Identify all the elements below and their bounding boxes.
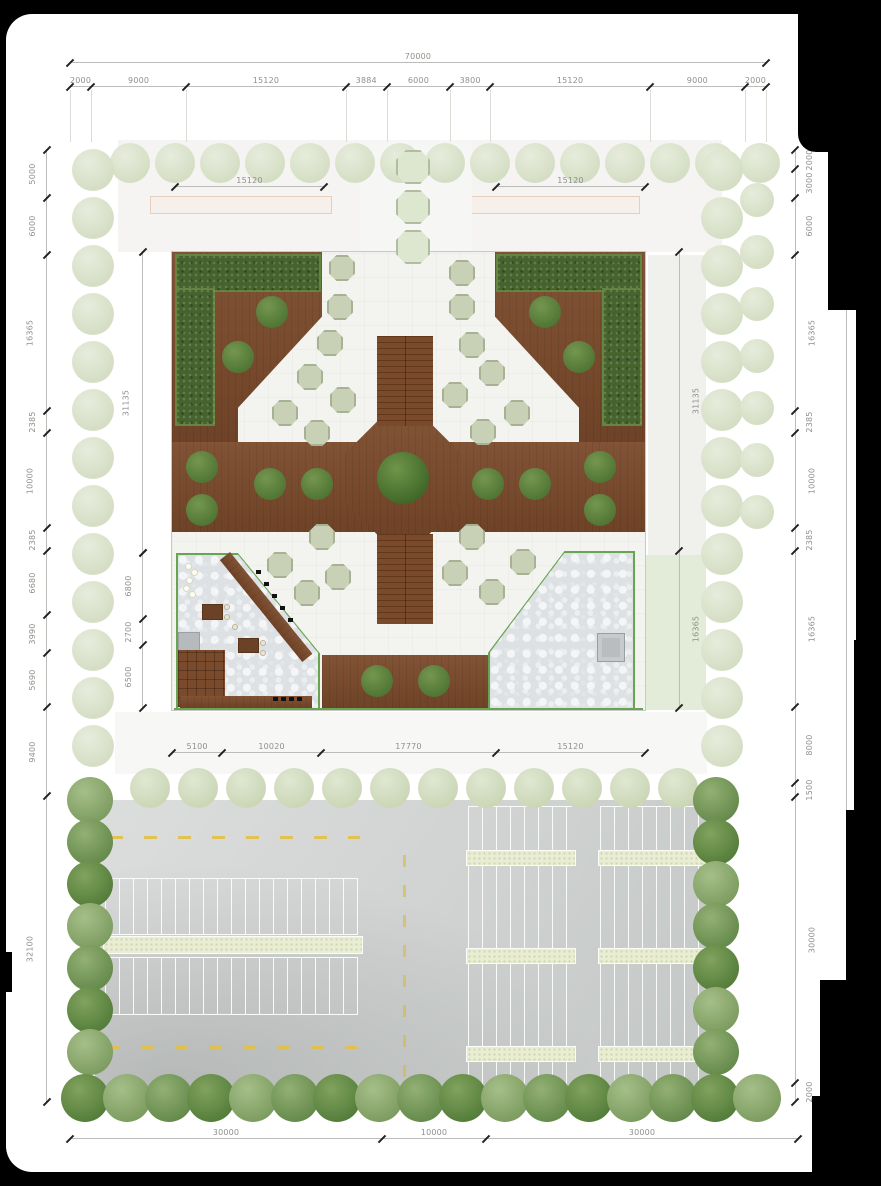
dim-label: 16365 [692, 616, 701, 642]
picnic-table [238, 638, 259, 653]
dim-extension-line [745, 90, 746, 142]
mask-step [828, 152, 881, 310]
tree-icon [67, 777, 113, 823]
tree-icon [529, 296, 561, 328]
planter [329, 255, 355, 281]
tree-icon [145, 1074, 193, 1122]
tree-icon [740, 287, 774, 321]
dim-label: 2385 [28, 529, 37, 550]
corridor-tree-icon [396, 150, 430, 184]
tree-icon [701, 245, 743, 287]
tree-icon [361, 665, 393, 697]
tree-icon [740, 183, 774, 217]
planter [449, 294, 475, 320]
lane-marking [110, 836, 360, 839]
dim-chain-top-total: 70000 [70, 52, 766, 66]
mask-step [820, 980, 881, 1096]
dim-label: 32100 [25, 936, 34, 962]
dim-label: 70000 [405, 52, 431, 61]
dim-label: 2700 [124, 621, 133, 642]
dim-segment: 15120 [496, 742, 645, 756]
dim-segment: 30000 [70, 1128, 382, 1142]
dim-label: 2385 [805, 411, 814, 432]
dim-label: 6800 [124, 575, 133, 596]
planter [504, 400, 530, 426]
dim-label: 15120 [557, 176, 583, 185]
corridor-tree-icon [396, 230, 430, 264]
dim-label: 5100 [187, 742, 208, 751]
dim-extension-line [387, 90, 388, 142]
tree-icon [693, 987, 739, 1033]
planter [459, 524, 485, 550]
dim-segment: 9000 [91, 76, 186, 90]
chair [232, 624, 238, 630]
deck-south-strip [322, 655, 490, 708]
tree-icon [701, 341, 743, 383]
bench [272, 594, 277, 598]
dim-plaza-bottom: 5100100201777015120 [172, 742, 645, 756]
dim-label: 10000 [808, 468, 817, 494]
parking-green-strip [598, 850, 708, 866]
tree-icon [563, 341, 595, 373]
parking-stall-row [468, 806, 572, 852]
context-building [468, 196, 640, 214]
dim-extension-line [450, 90, 451, 142]
tree-icon [701, 629, 743, 671]
dim-segment: 8000 [792, 707, 826, 783]
tree-icon [701, 533, 743, 575]
dim-extension-line [346, 90, 347, 142]
tree-icon [397, 1074, 445, 1122]
tree-icon [693, 777, 739, 823]
dim-segment: 15120 [490, 76, 650, 90]
dim-plaza-left-lower: 680027006500 [126, 553, 146, 708]
tree-icon [425, 143, 465, 183]
dim-segment: 6800 [126, 553, 146, 619]
parking-green-strip [466, 1046, 576, 1062]
parking-stall-row [105, 957, 358, 1015]
planter [470, 419, 496, 445]
dim-plaza-right-side: 3113516365 [676, 252, 696, 708]
planter [327, 294, 353, 320]
tree-icon [693, 1029, 739, 1075]
dim-segment: 17770 [321, 742, 496, 756]
dim-label: 3990 [28, 623, 37, 644]
parking-green-strip [466, 948, 576, 964]
planter [510, 549, 536, 575]
tree-icon [701, 485, 743, 527]
corridor-tree-icon [396, 190, 430, 224]
dim-extension-line [490, 90, 491, 142]
dim-plaza-left-upper: 31135 [126, 252, 146, 553]
chair [260, 640, 266, 646]
tree-icon [481, 1074, 529, 1122]
tree-icon [472, 468, 504, 500]
utility-pad [178, 632, 200, 652]
parking-stall-row [600, 962, 704, 1048]
dim-segment: 5690 [16, 653, 50, 707]
dim-segment: 32100 [16, 796, 50, 1102]
tree-icon [186, 451, 218, 483]
dim-label: 3884 [356, 76, 377, 85]
picnic-table [202, 604, 223, 620]
tree-icon [178, 768, 218, 808]
tree-icon [186, 494, 218, 526]
tree-icon [229, 1074, 277, 1122]
tree-icon [439, 1074, 487, 1122]
platform-pad [597, 633, 625, 662]
dim-label: 15120 [557, 76, 583, 85]
tree-icon [701, 293, 743, 335]
planter [317, 330, 343, 356]
dim-segment: 9400 [16, 707, 50, 796]
dim-label: 6000 [28, 216, 37, 237]
chair [224, 604, 230, 610]
dim-segment: 3884 [346, 76, 387, 90]
dim-chain-right: 2000300060001636523851000023851636580001… [792, 150, 826, 1102]
tree-icon [370, 768, 410, 808]
tree-icon [72, 437, 114, 479]
bench [297, 697, 302, 701]
dim-label: 17770 [395, 742, 421, 751]
tree-icon [693, 819, 739, 865]
dim-label: 8000 [805, 734, 814, 755]
tree-icon [313, 1074, 361, 1122]
parking-stall-row [468, 864, 572, 950]
tree-icon [418, 768, 458, 808]
planter [325, 564, 351, 590]
dim-label: 9000 [128, 76, 149, 85]
parking-stall-row [468, 962, 572, 1048]
tree-icon [110, 143, 150, 183]
dim-label: 3000 [805, 173, 814, 194]
tree-icon [740, 143, 780, 183]
dim-label: 15120 [236, 176, 262, 185]
tree-icon [701, 389, 743, 431]
planter [459, 332, 485, 358]
parking-green-strip [103, 936, 363, 954]
planter [442, 382, 468, 408]
dim-label: 2000 [805, 149, 814, 170]
tree-icon [740, 495, 774, 529]
dim-label: 9400 [28, 741, 37, 762]
tree-icon [72, 581, 114, 623]
dim-label: 2385 [805, 529, 814, 550]
dim-label: 16365 [808, 319, 817, 345]
tree-icon [701, 197, 743, 239]
mask-step [856, 310, 881, 640]
dim-label: 30000 [808, 927, 817, 953]
tree-icon [740, 391, 774, 425]
lane-marking [403, 855, 406, 1085]
tree-icon [222, 341, 254, 373]
stairs-south [377, 534, 433, 624]
tree-icon [67, 987, 113, 1033]
tree-icon [355, 1074, 403, 1122]
tree-icon [701, 725, 743, 767]
planter [309, 524, 335, 550]
hedge-line-south [174, 708, 643, 710]
tree-icon [67, 903, 113, 949]
dim-segment: 5100 [172, 742, 222, 756]
tree-icon [187, 1074, 235, 1122]
planter [272, 400, 298, 426]
tree-icon [61, 1074, 109, 1122]
tree-icon [254, 468, 286, 500]
tree-icon [322, 768, 362, 808]
dim-extension-line [766, 90, 767, 142]
tree-icon [740, 339, 774, 373]
dim-segment: 15120 [496, 176, 645, 190]
hedge-tl-side [175, 288, 215, 426]
dim-label: 2385 [28, 411, 37, 432]
dim-extension-line [91, 90, 92, 142]
dim-extension-line [186, 90, 187, 142]
dim-segment: 10000 [792, 433, 826, 528]
planter [479, 360, 505, 386]
dim-label: 6000 [408, 76, 429, 85]
dim-label: 9000 [687, 76, 708, 85]
dim-label: 6000 [805, 216, 814, 237]
planter [479, 579, 505, 605]
dim-segment: 16365 [16, 255, 50, 411]
parking-green-strip [598, 948, 708, 964]
planter [294, 580, 320, 606]
dim-segment: 3800 [450, 76, 490, 90]
tree-icon [650, 143, 690, 183]
tree-icon [693, 945, 739, 991]
planter [442, 560, 468, 586]
tree-icon [519, 468, 551, 500]
tree-icon [72, 293, 114, 335]
tree-icon [610, 768, 650, 808]
mask-step [812, 1096, 881, 1186]
dim-segment: 6000 [792, 198, 826, 255]
dim-extension-line [70, 90, 71, 142]
central-tree-icon [377, 452, 429, 504]
dim-segment: 9000 [650, 76, 745, 90]
dim-label: 6500 [124, 666, 133, 687]
dim-segment: 31135 [126, 252, 146, 553]
dim-label: 10000 [25, 468, 34, 494]
dim-segment: 31135 [676, 252, 696, 551]
planter [297, 364, 323, 390]
tree-icon [693, 861, 739, 907]
dim-segment: 6500 [126, 645, 146, 708]
planter [267, 552, 293, 578]
tree-icon [658, 768, 698, 808]
dim-label: 16365 [808, 616, 817, 642]
dim-label: 6680 [28, 572, 37, 593]
tree-icon [271, 1074, 319, 1122]
tree-icon [740, 235, 774, 269]
context-building [150, 196, 332, 214]
lane-marking [107, 1046, 357, 1049]
dim-segment: 30000 [486, 1128, 798, 1142]
dim-label: 30000 [629, 1128, 655, 1137]
bench [288, 618, 293, 622]
flower [187, 578, 192, 583]
dim-segment: 10000 [382, 1128, 486, 1142]
tree-icon [72, 197, 114, 239]
tree-icon [701, 437, 743, 479]
hedge-tr-top [496, 254, 642, 292]
tree-icon [701, 581, 743, 623]
dim-plaza-top-right: 15120 [496, 176, 645, 190]
dim-segment: 16365 [792, 551, 826, 707]
tree-icon [649, 1074, 697, 1122]
tree-icon [274, 768, 314, 808]
bench [280, 606, 285, 610]
plaza [172, 252, 645, 710]
mask-notch-left [0, 952, 12, 992]
mask-corner-tr [798, 0, 881, 152]
mask-step [854, 640, 881, 810]
tree-icon [607, 1074, 655, 1122]
bench [289, 697, 294, 701]
flower [192, 570, 197, 575]
tree-icon [67, 1029, 113, 1075]
tree-icon [701, 149, 743, 191]
dim-segment: 10020 [222, 742, 321, 756]
dim-label: 3800 [460, 76, 481, 85]
tree-icon [72, 533, 114, 575]
dim-label: 31135 [121, 389, 130, 415]
dim-chain-left: 5000600016365238510000238566803990569094… [16, 150, 50, 1102]
tree-icon [565, 1074, 613, 1122]
parking-stall-row [600, 864, 704, 950]
tree-icon [72, 245, 114, 287]
tree-icon [740, 443, 774, 477]
tree-icon [256, 296, 288, 328]
dim-chain-top: 20009000151203884600038001512090002000 [70, 76, 766, 90]
dim-label: 10000 [421, 1128, 447, 1137]
tree-icon [72, 389, 114, 431]
tree-icon [733, 1074, 781, 1122]
tree-icon [584, 451, 616, 483]
dim-segment: 2700 [126, 619, 146, 645]
tree-icon [72, 341, 114, 383]
dim-label: 15120 [557, 742, 583, 751]
chair [224, 614, 230, 620]
tree-icon [226, 768, 266, 808]
tree-icon [562, 768, 602, 808]
tree-icon [67, 861, 113, 907]
dim-segment: 3990 [16, 615, 50, 653]
dim-segment: 6000 [16, 198, 50, 255]
dim-segment: 16365 [792, 255, 826, 411]
flower [184, 586, 189, 591]
dim-segment: 15120 [175, 176, 324, 190]
tree-icon [103, 1074, 151, 1122]
tree-icon [523, 1074, 571, 1122]
flower [190, 592, 195, 597]
parking-green-strip [466, 850, 576, 866]
tree-icon [701, 677, 743, 719]
bench [273, 697, 278, 701]
tree-icon [72, 149, 114, 191]
tree-icon [67, 819, 113, 865]
dim-segment: 15120 [186, 76, 346, 90]
hedge-tl-top [175, 254, 321, 292]
planter [304, 420, 330, 446]
bench [281, 697, 286, 701]
mask-step [846, 810, 881, 980]
bench [264, 582, 269, 586]
parking-green-strip [598, 1046, 708, 1062]
chair [260, 650, 266, 656]
dim-segment: 2385 [16, 528, 50, 551]
dim-plaza-top-left: 15120 [175, 176, 324, 190]
tree-icon [466, 768, 506, 808]
tree-icon [584, 494, 616, 526]
tree-icon [72, 677, 114, 719]
tree-icon [418, 665, 450, 697]
dim-chain-bottom: 300001000030000 [70, 1128, 798, 1142]
flower [186, 564, 191, 569]
dim-extension-line [650, 90, 651, 142]
dim-segment: 70000 [70, 52, 766, 66]
dim-label: 31135 [692, 388, 701, 414]
dim-segment: 10000 [16, 433, 50, 528]
dim-segment: 16365 [676, 551, 696, 708]
tree-icon [72, 629, 114, 671]
parking-stall-row [105, 878, 358, 935]
stairs-north [377, 336, 433, 426]
hedge-tr-side [602, 288, 642, 426]
tree-icon [514, 768, 554, 808]
dim-label: 30000 [213, 1128, 239, 1137]
tree-icon [130, 768, 170, 808]
dim-label: 5000 [28, 163, 37, 184]
tree-icon [72, 485, 114, 527]
tree-icon [691, 1074, 739, 1122]
parking-area [95, 800, 717, 1096]
tree-icon [693, 903, 739, 949]
planter [330, 387, 356, 413]
tree-icon [72, 725, 114, 767]
dim-label: 10020 [258, 742, 284, 751]
planter [449, 260, 475, 286]
dim-label: 16365 [25, 319, 34, 345]
site-plan-canvas: 70000 2000900015120388460003800151209000… [0, 0, 881, 1186]
dim-segment: 5000 [16, 150, 50, 198]
tree-icon [67, 945, 113, 991]
tree-icon [335, 143, 375, 183]
tree-icon [301, 468, 333, 500]
dim-segment: 6000 [387, 76, 450, 90]
dim-label: 5690 [28, 669, 37, 690]
dim-segment: 6680 [16, 551, 50, 615]
dim-label: 15120 [253, 76, 279, 85]
parking-stall-row [600, 806, 704, 852]
bench [256, 570, 261, 574]
